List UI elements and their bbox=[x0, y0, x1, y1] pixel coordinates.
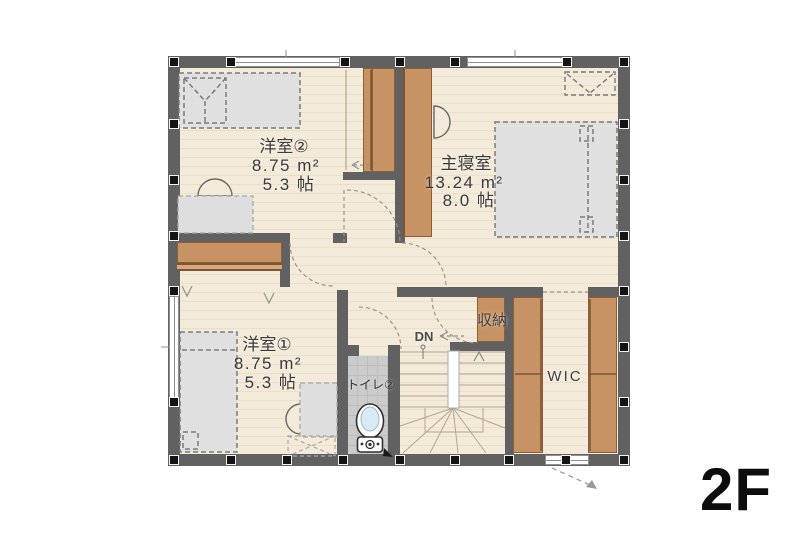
window-left bbox=[169, 296, 179, 398]
structural-post bbox=[338, 455, 348, 465]
structural-post bbox=[395, 455, 405, 465]
structural-post bbox=[169, 397, 179, 407]
room-area-youshitsu2: 8.75 m² bbox=[252, 156, 320, 176]
structural-post bbox=[226, 57, 236, 67]
wall-storage-bottom bbox=[450, 342, 513, 351]
wall-toilet-stairs bbox=[388, 345, 400, 466]
wic-closet-right bbox=[588, 297, 617, 453]
window-top-right bbox=[467, 57, 563, 67]
structural-post bbox=[619, 397, 629, 407]
structural-post bbox=[619, 286, 629, 296]
structural-post bbox=[619, 57, 629, 67]
floor-plan-2f: 洋室② 8.75 m² 5.3 帖 主寝室 13.24 m² 8.0 帖 洋室①… bbox=[0, 0, 800, 540]
room-area-youshitsu1: 8.75 m² bbox=[234, 354, 302, 374]
structural-post bbox=[169, 231, 179, 241]
structural-post bbox=[619, 231, 629, 241]
room-area-master: 13.24 m² bbox=[424, 173, 503, 193]
floorplan-canvas: 洋室② 8.75 m² 5.3 帖 主寝室 13.24 m² 8.0 帖 洋室①… bbox=[0, 0, 800, 540]
floor-number-label: 2F bbox=[700, 455, 772, 524]
stairs-dn-label: DN bbox=[415, 330, 434, 345]
master-desk-unit bbox=[403, 68, 432, 237]
structural-post bbox=[619, 175, 629, 185]
structural-post bbox=[340, 57, 350, 67]
structural-post bbox=[226, 455, 236, 465]
wall-toilet-top-stub bbox=[348, 345, 359, 356]
structural-post bbox=[169, 455, 179, 465]
structural-post bbox=[450, 57, 460, 67]
room-tatami-youshitsu2: 5.3 帖 bbox=[263, 175, 316, 195]
room-tatami-master: 8.0 帖 bbox=[443, 191, 496, 211]
room-tatami-youshitsu1: 5.3 帖 bbox=[245, 373, 298, 393]
structural-post bbox=[169, 286, 179, 296]
room-label-youshitsu1: 洋室① bbox=[242, 335, 291, 355]
room-label-master: 主寝室 bbox=[441, 154, 492, 174]
wic-closet-left bbox=[513, 297, 543, 453]
room-label-toilet: トイレ② bbox=[347, 378, 396, 392]
structural-post bbox=[562, 57, 572, 67]
structural-post bbox=[169, 57, 179, 67]
room-label-youshitsu2: 洋室② bbox=[259, 137, 308, 157]
closet-youshitsu2 bbox=[363, 68, 395, 172]
closet-youshitsu1-doors bbox=[177, 263, 282, 271]
room-label-wic: WIC bbox=[547, 368, 582, 385]
wall-closet2-bottom bbox=[343, 172, 405, 180]
structural-post bbox=[282, 455, 292, 465]
entry-arrow bbox=[552, 468, 597, 489]
structural-post bbox=[169, 119, 179, 129]
structural-post bbox=[561, 455, 571, 465]
room-label-storage: 収納 bbox=[477, 312, 507, 329]
closet-youshitsu1 bbox=[177, 242, 282, 263]
structural-post bbox=[169, 175, 179, 185]
wall-master-south-east bbox=[588, 287, 618, 297]
structural-post bbox=[395, 57, 405, 67]
wall-youshitsu-divider-b bbox=[333, 233, 347, 243]
wall-master-south bbox=[397, 287, 543, 297]
structural-post bbox=[619, 455, 629, 465]
structural-post bbox=[619, 119, 629, 129]
window-top-left bbox=[233, 57, 340, 67]
structural-post bbox=[450, 455, 460, 465]
structural-post bbox=[504, 455, 514, 465]
structural-post bbox=[619, 342, 629, 352]
toilet-room-floor bbox=[348, 356, 388, 454]
